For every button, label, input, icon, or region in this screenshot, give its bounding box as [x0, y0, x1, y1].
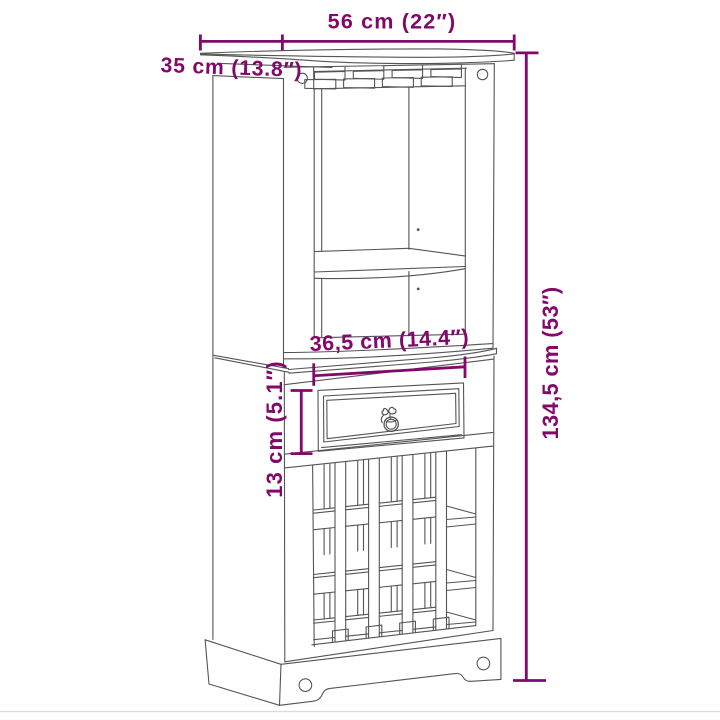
svg-text:36,5 cm (14.4″): 36,5 cm (14.4″) [309, 325, 470, 356]
svg-text:134,5 cm (53″): 134,5 cm (53″) [538, 287, 563, 440]
svg-text:35 cm (13.8″): 35 cm (13.8″) [160, 54, 303, 82]
svg-text:56 cm (22″): 56 cm (22″) [328, 10, 457, 34]
svg-text:13 cm (5.1″): 13 cm (5.1″) [262, 360, 287, 497]
